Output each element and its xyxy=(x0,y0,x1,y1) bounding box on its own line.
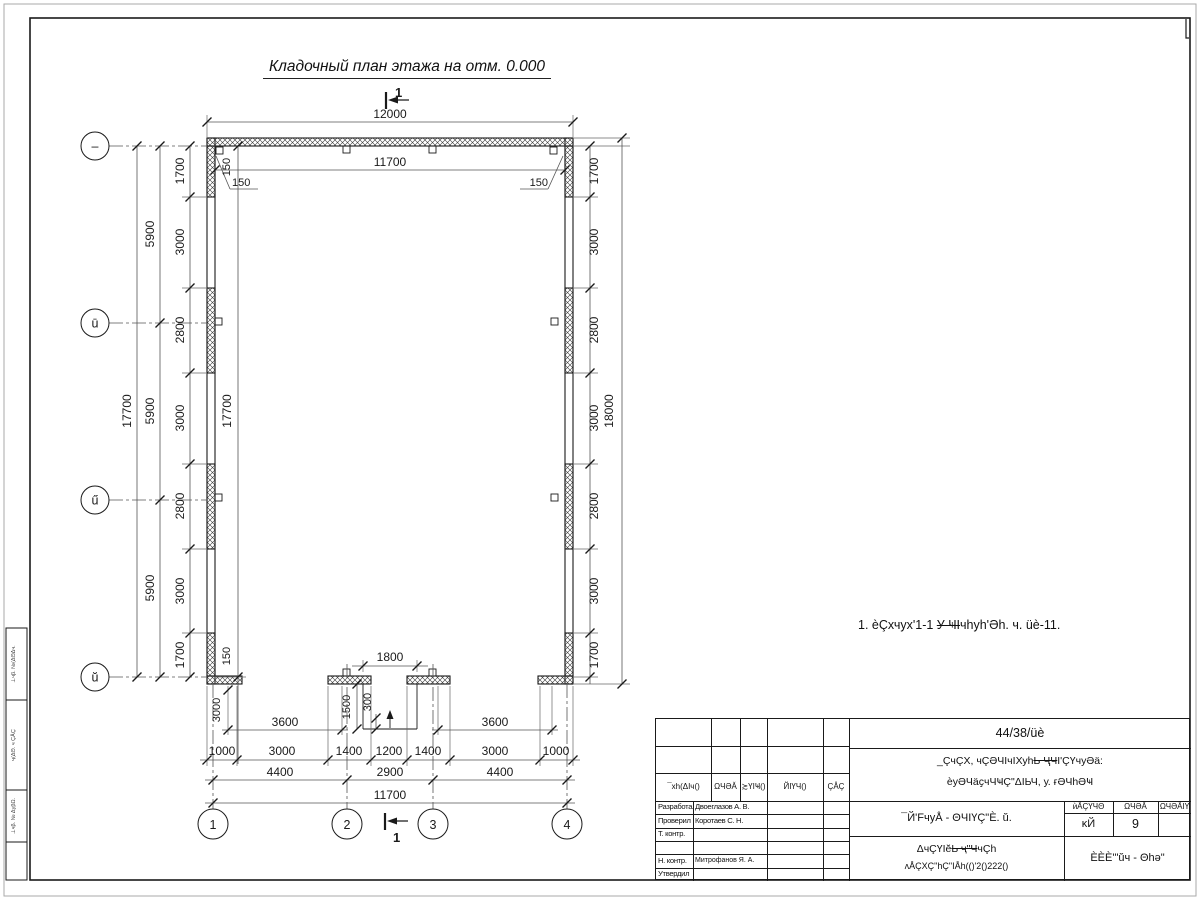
dim-150-bottom: 150 xyxy=(221,647,233,665)
drawing-sheet: { "title": "Кладочный план этажа на отм.… xyxy=(0,0,1200,900)
top-wall xyxy=(207,138,573,146)
dim-apron: 3000 xyxy=(211,698,223,722)
dim-left: 1700 xyxy=(173,641,187,668)
dim-left: 2800 xyxy=(173,316,187,343)
doc-code: ʌÅÇХÇ"hÇ"IÅh(()'2()222() xyxy=(849,857,1064,875)
section-label-top: 1 xyxy=(395,85,402,100)
wall-markers xyxy=(215,146,558,676)
dim-gate-left: 3600 xyxy=(272,715,299,729)
dim-gate-right: 3600 xyxy=(482,715,509,729)
doc-type-line: ΔчÇҮIĕЬ ҷ"ЧчÇh xyxy=(849,839,1064,859)
rev-header-list: ΩЧӘĂ xyxy=(711,773,740,801)
dim-step: 300 xyxy=(362,693,374,711)
left-wall-outline xyxy=(207,138,215,684)
axis-col-label: 2 xyxy=(344,818,351,832)
dim-left-major: 5900 xyxy=(143,574,157,601)
dim-right: 1700 xyxy=(587,641,601,668)
dim-bottom: 3000 xyxy=(482,744,509,758)
dim-left-overall: 17700 xyxy=(120,394,134,428)
sheet-header: ΩЧӘĂ xyxy=(1113,801,1158,813)
dim-top-overall: 12000 xyxy=(373,107,407,121)
axis-col-label: 3 xyxy=(430,818,437,832)
bottom-wall-right xyxy=(538,676,573,684)
dim-door: 1800 xyxy=(377,650,404,664)
dim-left: 3000 xyxy=(173,577,187,604)
dimension-labels: 12000 11700 150 150 150 17700 150 1700 3… xyxy=(120,107,616,802)
dim-right: 2800 xyxy=(587,316,601,343)
section-mark-bottom: 1 xyxy=(385,813,408,845)
dim-150-left: 150 xyxy=(232,177,250,189)
role-tcontr: Т. контр. xyxy=(656,828,693,841)
dim-left: 2800 xyxy=(173,492,187,519)
dim-inner-height: 17700 xyxy=(220,394,234,428)
axis-row-label: ű xyxy=(92,494,99,508)
role-approved: Утвердил xyxy=(656,868,693,881)
dim-bottom-overall: 11700 xyxy=(374,788,407,802)
section-mark-top: 1 xyxy=(386,85,409,109)
drawing-title: Кладочный план этажа на отм. 0.000 xyxy=(263,58,551,79)
dim-left-major: 5900 xyxy=(143,397,157,424)
dim-bottom: 1200 xyxy=(376,744,403,758)
dim-bottom-axes: 4400 xyxy=(487,765,514,779)
name-ncontr: Митрофанов Я. А. xyxy=(693,854,767,868)
dim-right: 3000 xyxy=(587,228,601,255)
note-struck: У ҸI xyxy=(937,618,960,632)
axis-row-label: – xyxy=(92,140,99,154)
axis-row-label: ū xyxy=(92,317,99,331)
dimension-lines xyxy=(137,122,622,803)
company-name: ÈÈÈ'"ŭч - Θhә" xyxy=(1064,836,1191,881)
rev-header-data: ÇÅÇ xyxy=(823,773,849,801)
sheets-total xyxy=(1158,813,1191,836)
dim-right: 1700 xyxy=(587,157,601,184)
dim-bottom: 1400 xyxy=(415,744,442,758)
axis-row-label: ŭ xyxy=(92,671,99,685)
extension-lines xyxy=(182,115,630,766)
frame-corner-box xyxy=(1186,19,1189,38)
note-pre: 1. èÇхчух'1-1 xyxy=(858,618,937,632)
dim-right: 3000 xyxy=(587,577,601,604)
bottom-pier-left xyxy=(328,676,371,684)
dim-right-overall: 18000 xyxy=(602,394,616,428)
bottom-pier-right xyxy=(407,676,450,684)
dim-150-top: 150 xyxy=(221,158,233,176)
margin-box1-label: ⊥чβ. №(ΔΘΔч. xyxy=(10,645,17,683)
axis-col-label: 1 xyxy=(210,818,217,832)
rev-header-podp: ЙIҮЧ() xyxy=(767,773,823,801)
rev-header-izm: ¯хh(ΔIч() xyxy=(656,773,711,801)
note-post: чhуh'Әh. ч. üè-11. xyxy=(960,618,1060,632)
dim-right: 2800 xyxy=(587,492,601,519)
dim-left-major: 5900 xyxy=(143,220,157,247)
dim-bottom: 1400 xyxy=(336,744,363,758)
sheet-title: ¯Й'FчуÅ - ΘЧIҮÇ"È. ŭ. xyxy=(849,801,1064,836)
dim-bottom: 1000 xyxy=(543,744,570,758)
project-name-line1: _ÇчÇХ, чÇӘЧIчIХуhЬ ҶЧI'ÇҮчуӘӓ: xyxy=(849,750,1191,772)
section-label-bottom: 1 xyxy=(393,830,400,845)
name-developed: Двоеглазов А. В. xyxy=(693,801,767,814)
margin-box3-label: ⊥чβ. № ΔуβΩ. xyxy=(10,797,17,834)
dim-porch: 1500 xyxy=(341,695,353,719)
margin-boxes: ⊥чβ. №(ΔΘΔч. ҷ(ΔΘ. ч ÇÅÇ ⊥чβ. № ΔуβΩ. xyxy=(6,628,27,880)
dim-bottom: 1000 xyxy=(209,744,236,758)
dim-inner-width: 11700 xyxy=(374,155,407,169)
sheet-number: 9 xyxy=(1113,813,1158,836)
walls xyxy=(207,138,573,684)
dim-right: 3000 xyxy=(587,404,601,431)
dim-bottom-axes: 2900 xyxy=(377,765,404,779)
plan-note: 1. èÇхчух'1-1 У ҸIчhуh'Әh. ч. üè-11. xyxy=(858,618,1060,632)
margin-box2-label: ҷ(ΔΘ. ч ÇÅÇ xyxy=(10,729,17,761)
role-checked: Проверил xyxy=(656,814,693,828)
dim-bottom: 3000 xyxy=(269,744,296,758)
project-name-line2: ѐуӘЧӓҫчЧҸÇ"ΔIЬЧ, у. ғӘЧhӘҸ xyxy=(849,771,1191,793)
dim-bottom-axes: 4400 xyxy=(267,765,294,779)
dim-left: 3000 xyxy=(173,228,187,255)
stage-header: ѝÅÇҮЧΘ xyxy=(1064,801,1113,813)
stage-value: ĸЙ xyxy=(1064,813,1113,836)
dim-150-right: 150 xyxy=(530,177,548,189)
name-checked: Коротаев С. Н. xyxy=(693,814,767,828)
right-wall-outline xyxy=(565,138,573,684)
role-ncontr: Н. контр. xyxy=(656,854,693,868)
doc-number: 44/38/üè xyxy=(849,719,1191,748)
role-developed: Разработал xyxy=(656,801,693,814)
rev-header-ndoc: ≿ҮIҸ() xyxy=(740,773,767,801)
dim-left: 3000 xyxy=(173,404,187,431)
dim-left: 1700 xyxy=(173,157,187,184)
title-block: ¯хh(ΔIч() ΩЧӘĂ ≿ҮIҸ() ЙIҮЧ() ÇÅÇ Разрабо… xyxy=(655,718,1190,880)
axis-col-label: 4 xyxy=(564,818,571,832)
sheets-header: ΩЧӘÅIҮ xyxy=(1158,801,1191,813)
